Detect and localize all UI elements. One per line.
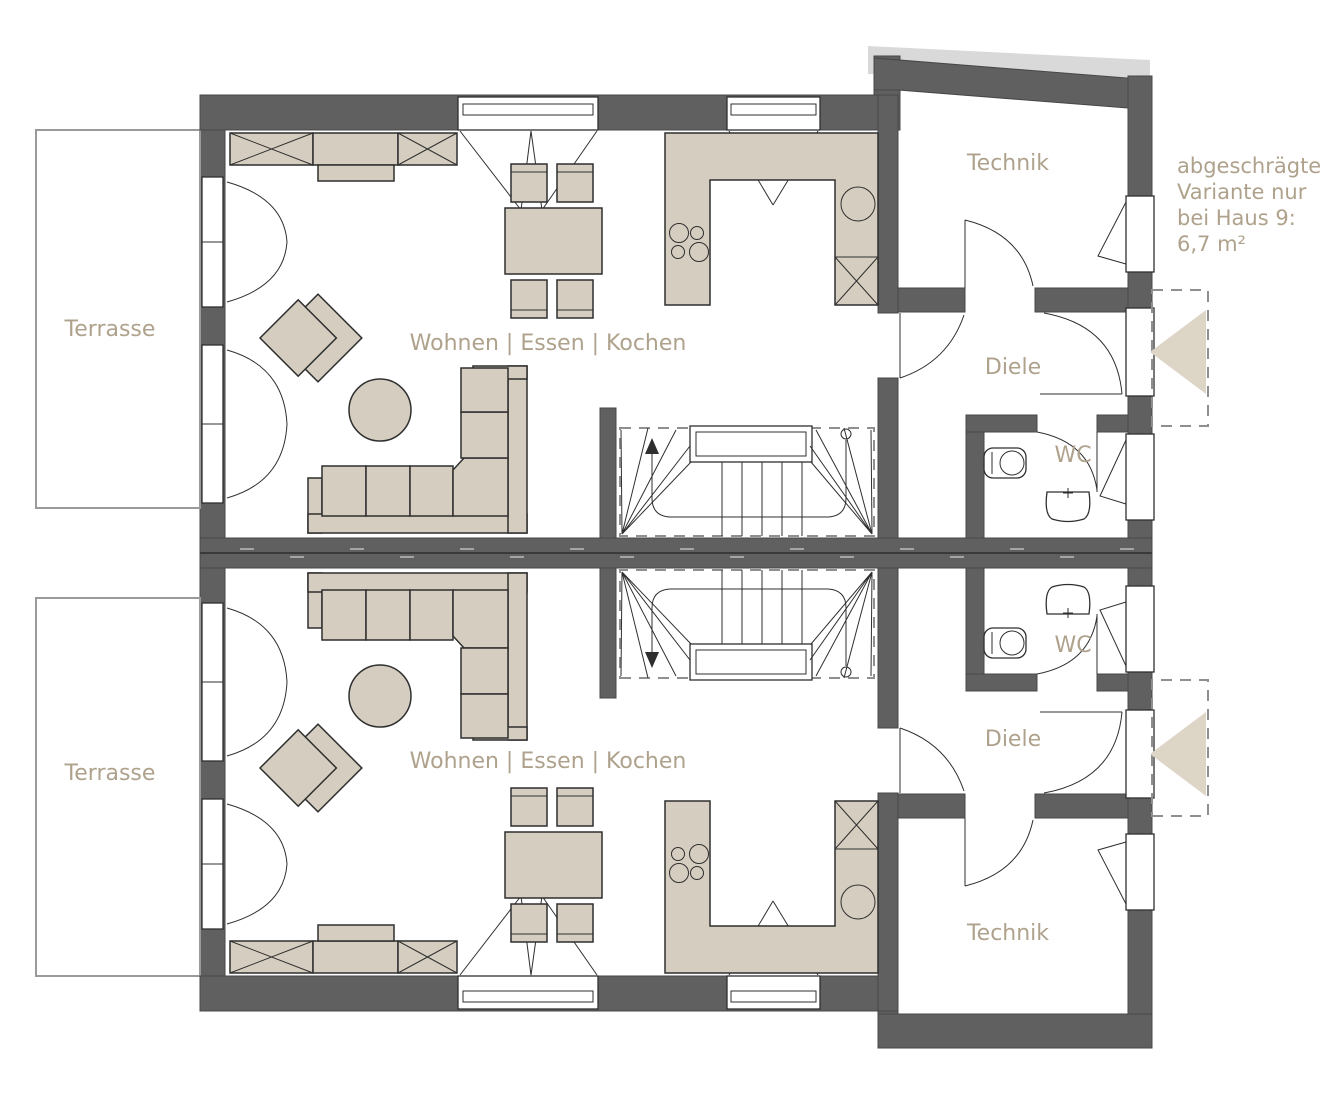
room-label-technik-top: Technik [966, 151, 1049, 176]
room-label-technik-bottom: Technik [966, 921, 1049, 946]
annotation-line-4: 6,7 m² [1177, 232, 1246, 256]
room-label-living-top: Wohnen | Essen | Kochen [410, 331, 687, 356]
room-label-hall-bottom: Diele [985, 727, 1041, 752]
annotation-line-1: abgeschrägte [1177, 154, 1321, 178]
room-label-living-bottom: Wohnen | Essen | Kochen [410, 749, 687, 774]
tv-board [318, 165, 394, 181]
outer-wall-technik-bottom [878, 1014, 1152, 1048]
door-opening [1126, 308, 1154, 396]
dining-chair [557, 280, 593, 318]
wall-wc-left [966, 432, 984, 538]
coffee-table [349, 379, 411, 441]
annotation-line-3: bei Haus 9: [1177, 206, 1296, 230]
wall-stair-left [600, 408, 616, 538]
sofa-cushion [366, 466, 410, 516]
floor-plan-canvas: Terrasse Terrasse Wohnen | Essen | Koche… [0, 0, 1341, 1099]
sofa-cushion [461, 368, 508, 412]
dining-table [505, 208, 602, 274]
sofa-cushion [461, 412, 508, 458]
dining-chair [511, 164, 547, 202]
room-label-wc-top: WC [1054, 443, 1091, 468]
cabinet-plain [313, 133, 398, 165]
floor-plan-page: Terrasse Terrasse Wohnen | Essen | Koche… [0, 0, 1341, 1099]
sofa-back-right [508, 366, 527, 533]
room-label-terrace-top: Terrasse [64, 317, 156, 342]
sofa-back-bottom [308, 514, 527, 533]
toilet-body [984, 448, 1026, 478]
toilet-icon [984, 448, 1026, 478]
room-label-wc-bottom: WC [1054, 633, 1091, 658]
wall-living-hall-lower [878, 378, 898, 538]
stair-landing [690, 426, 812, 462]
room-label-terrace-bottom: Terrasse [64, 761, 156, 786]
window-frame [1126, 196, 1154, 272]
sofa-cushion [322, 466, 366, 516]
window-frame [727, 97, 820, 130]
wall-living-hall-upper [878, 95, 898, 313]
wall-wc-top-left [966, 415, 1037, 432]
sofa-cushion [410, 466, 453, 516]
wall-technik-hall-left [898, 288, 965, 312]
sofa-corner-cushion [453, 458, 508, 516]
wall-technik-hall-right [1035, 288, 1128, 312]
wall-wc-top-right [1097, 415, 1128, 432]
window-frame [458, 97, 598, 130]
annotation-line-2: Variante nur [1177, 180, 1307, 204]
dining-chair [511, 280, 547, 318]
room-label-hall-top: Diele [985, 355, 1041, 380]
sink-icon [1046, 488, 1090, 522]
window-frame [1126, 434, 1154, 520]
dining-chair [557, 164, 593, 202]
